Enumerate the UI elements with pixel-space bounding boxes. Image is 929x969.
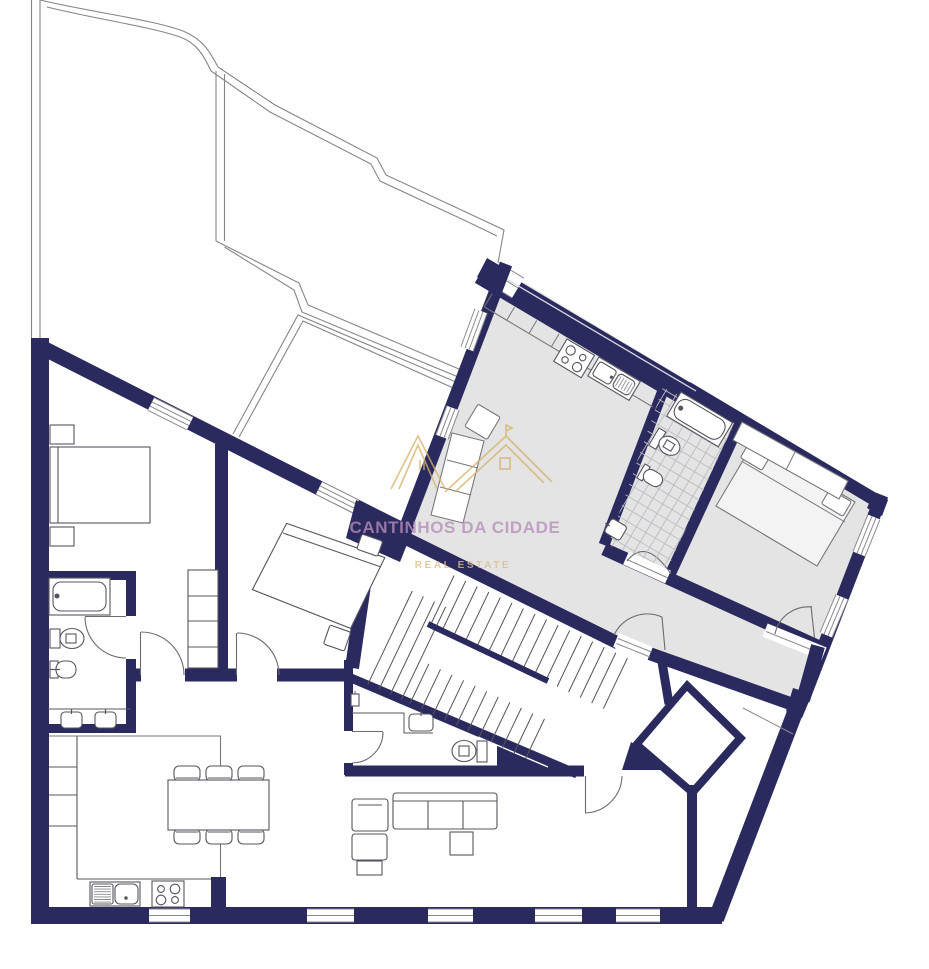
svg-text:REAL ESTATE: REAL ESTATE xyxy=(415,560,511,571)
svg-text:CANTINHOS DA CIDADE: CANTINHOS DA CIDADE xyxy=(350,518,561,537)
